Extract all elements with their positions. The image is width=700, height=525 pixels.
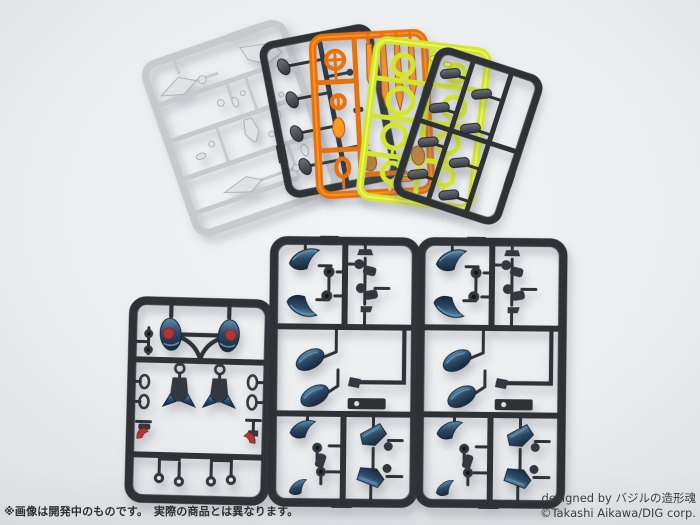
gate-plate: [348, 398, 386, 409]
product-photo: ※画像は開発中のものです。 実際の商品とは異なります。 designed by …: [0, 0, 700, 525]
photo-canvas: [0, 0, 700, 525]
credits: designed by バジルの造形魂 ©Takashi Aikawa/DIG …: [540, 491, 696, 520]
credit-designed-by: designed by バジルの造形魂: [540, 491, 696, 506]
runner-top-tab: [319, 236, 339, 245]
runner-bottom-tab: [331, 499, 353, 508]
disclaimer-text: ※画像は開発中のものです。 実際の商品とは異なります。: [4, 503, 298, 519]
credit-copyright: ©Takashi Aikawa/DIG corp.: [540, 506, 696, 521]
